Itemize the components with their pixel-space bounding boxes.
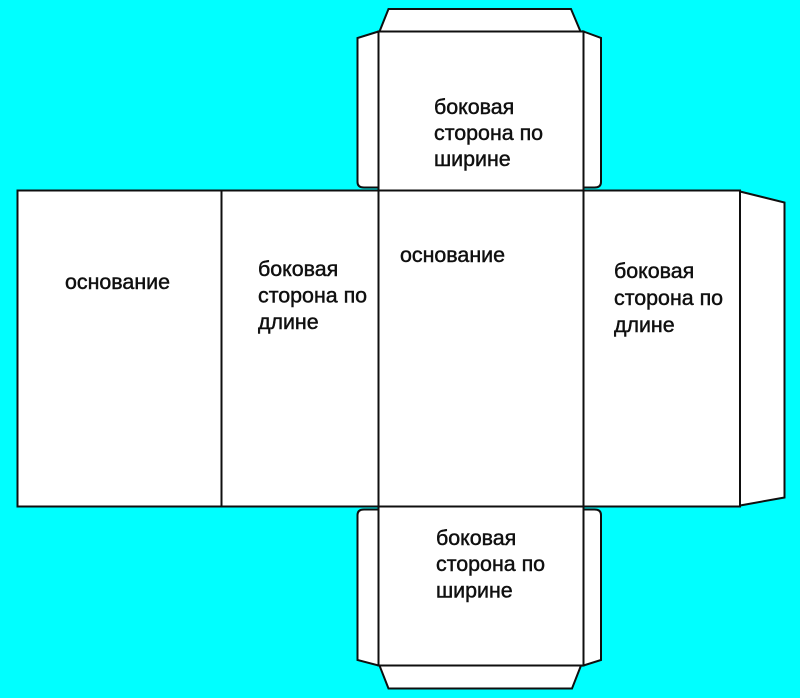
svg-text:ширине: ширине [434, 147, 511, 171]
svg-text:боковая: боковая [614, 259, 694, 283]
svg-text:основание: основание [400, 243, 505, 267]
svg-text:ширине: ширине [436, 579, 513, 603]
svg-text:боковая: боковая [258, 257, 338, 281]
svg-text:основание: основание [65, 270, 170, 294]
svg-text:сторона по: сторона по [436, 552, 545, 576]
svg-text:длине: длине [258, 310, 319, 334]
svg-text:боковая: боковая [434, 95, 514, 119]
svg-text:сторона по: сторона по [258, 284, 367, 308]
svg-text:длине: длине [614, 313, 675, 337]
svg-text:сторона по: сторона по [614, 286, 723, 310]
svg-text:боковая: боковая [436, 526, 516, 550]
svg-text:сторона по: сторона по [434, 121, 543, 145]
